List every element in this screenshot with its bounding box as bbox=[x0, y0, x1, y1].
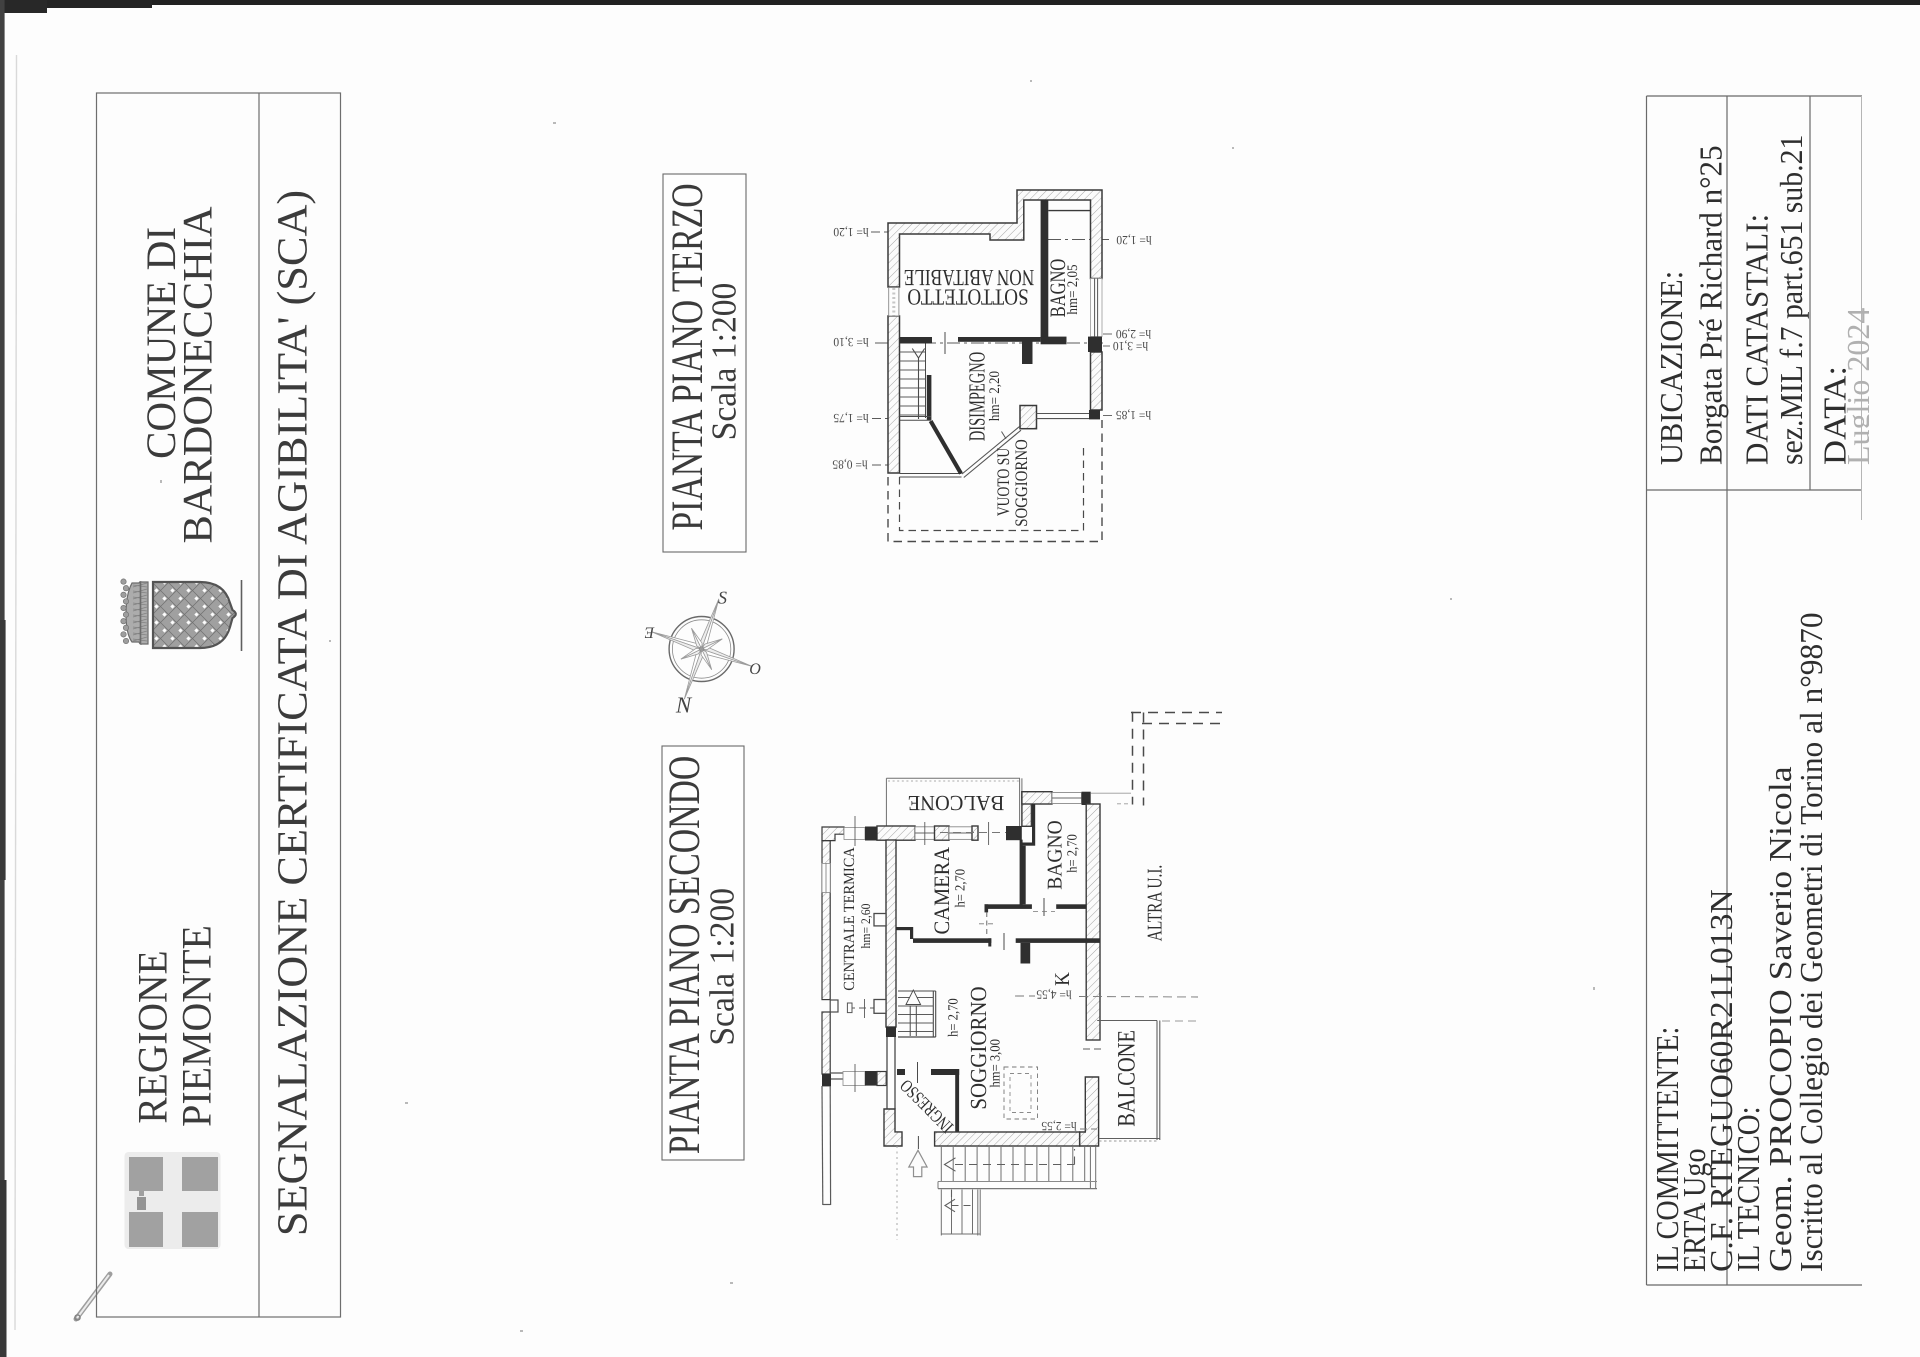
svg-text:BARDONECCHIA: BARDONECCHIA bbox=[176, 206, 222, 544]
svg-text:REGIONE: REGIONE bbox=[131, 950, 177, 1123]
svg-text:UBICAZIONE:: UBICAZIONE: bbox=[1653, 271, 1689, 465]
svg-text:Scala 1:200: Scala 1:200 bbox=[705, 283, 744, 441]
svg-text:hm= 2,60: hm= 2,60 bbox=[858, 904, 873, 949]
svg-text:DISIMPEGNO: DISIMPEGNO bbox=[964, 352, 989, 441]
svg-text:N: N bbox=[675, 693, 693, 718]
svg-text:hm= 3,00: hm= 3,00 bbox=[989, 1039, 1004, 1087]
svg-text:h= 2,70: h= 2,70 bbox=[953, 869, 968, 908]
svg-text:hm= 2,05: hm= 2,05 bbox=[1065, 264, 1081, 314]
svg-text:NON ABITABILE: NON ABITABILE bbox=[904, 265, 1034, 290]
svg-text:h= 1,75: h= 1,75 bbox=[833, 411, 868, 425]
svg-text:h= 2,90: h= 2,90 bbox=[1116, 327, 1151, 341]
svg-text:PIEMONTE: PIEMONTE bbox=[175, 925, 221, 1127]
svg-text:h= 0,85: h= 0,85 bbox=[832, 458, 867, 472]
svg-text:h= 3,10: h= 3,10 bbox=[1113, 339, 1148, 353]
svg-text:ALTRA U.I.: ALTRA U.I. bbox=[1142, 865, 1166, 942]
svg-text:SEGNALAZIONE CERTIFICATA DI AG: SEGNALAZIONE CERTIFICATA DI AGIBILITA' (… bbox=[270, 190, 317, 1236]
svg-text:h= 2,70: h= 2,70 bbox=[1066, 834, 1081, 873]
svg-text:CENTRALE TERMICA: CENTRALE TERMICA bbox=[841, 847, 858, 991]
svg-text:IL TECNICO:: IL TECNICO: bbox=[1730, 1106, 1766, 1272]
svg-text:K: K bbox=[1050, 972, 1074, 986]
svg-text:h= 4,55: h= 4,55 bbox=[1036, 988, 1071, 1002]
svg-text:SOGGIORNO: SOGGIORNO bbox=[1011, 439, 1031, 527]
svg-text:h= 2,70: h= 2,70 bbox=[947, 998, 962, 1037]
svg-text:CAMERA: CAMERA bbox=[929, 847, 954, 935]
svg-text:sez.MIL f.7 part.651 sub.21: sez.MIL f.7 part.651 sub.21 bbox=[1773, 135, 1809, 465]
svg-text:h= 1,20: h= 1,20 bbox=[833, 225, 868, 239]
svg-text:E: E bbox=[644, 624, 655, 641]
svg-text:h= 2,55: h= 2,55 bbox=[1041, 1119, 1076, 1133]
svg-text:h= 1,85: h= 1,85 bbox=[1116, 408, 1151, 422]
svg-text:SOGGIORNO: SOGGIORNO bbox=[966, 986, 991, 1109]
svg-text:h= 1,20: h= 1,20 bbox=[1116, 233, 1151, 247]
svg-text:BAGNO: BAGNO bbox=[1043, 820, 1067, 889]
svg-text:BALCONE: BALCONE bbox=[1114, 1030, 1141, 1127]
svg-text:Iscritto al Collegio dei Geome: Iscritto al Collegio dei Geometri di Tor… bbox=[1793, 613, 1829, 1272]
svg-text:BALCONE: BALCONE bbox=[908, 791, 1004, 815]
svg-text:DATI CATASTALI:: DATI CATASTALI: bbox=[1739, 214, 1775, 465]
svg-text:Scala 1:200: Scala 1:200 bbox=[703, 888, 742, 1046]
svg-text:Borgata Pré Richard n°25: Borgata Pré Richard n°25 bbox=[1693, 145, 1729, 465]
svg-text:O: O bbox=[749, 661, 761, 678]
svg-text:PIANTA PIANO SECONDO: PIANTA PIANO SECONDO bbox=[659, 756, 709, 1155]
svg-text:S: S bbox=[718, 588, 727, 608]
svg-text:hm= 2,20: hm= 2,20 bbox=[987, 371, 1003, 421]
svg-text:h= 3,10: h= 3,10 bbox=[833, 335, 868, 349]
